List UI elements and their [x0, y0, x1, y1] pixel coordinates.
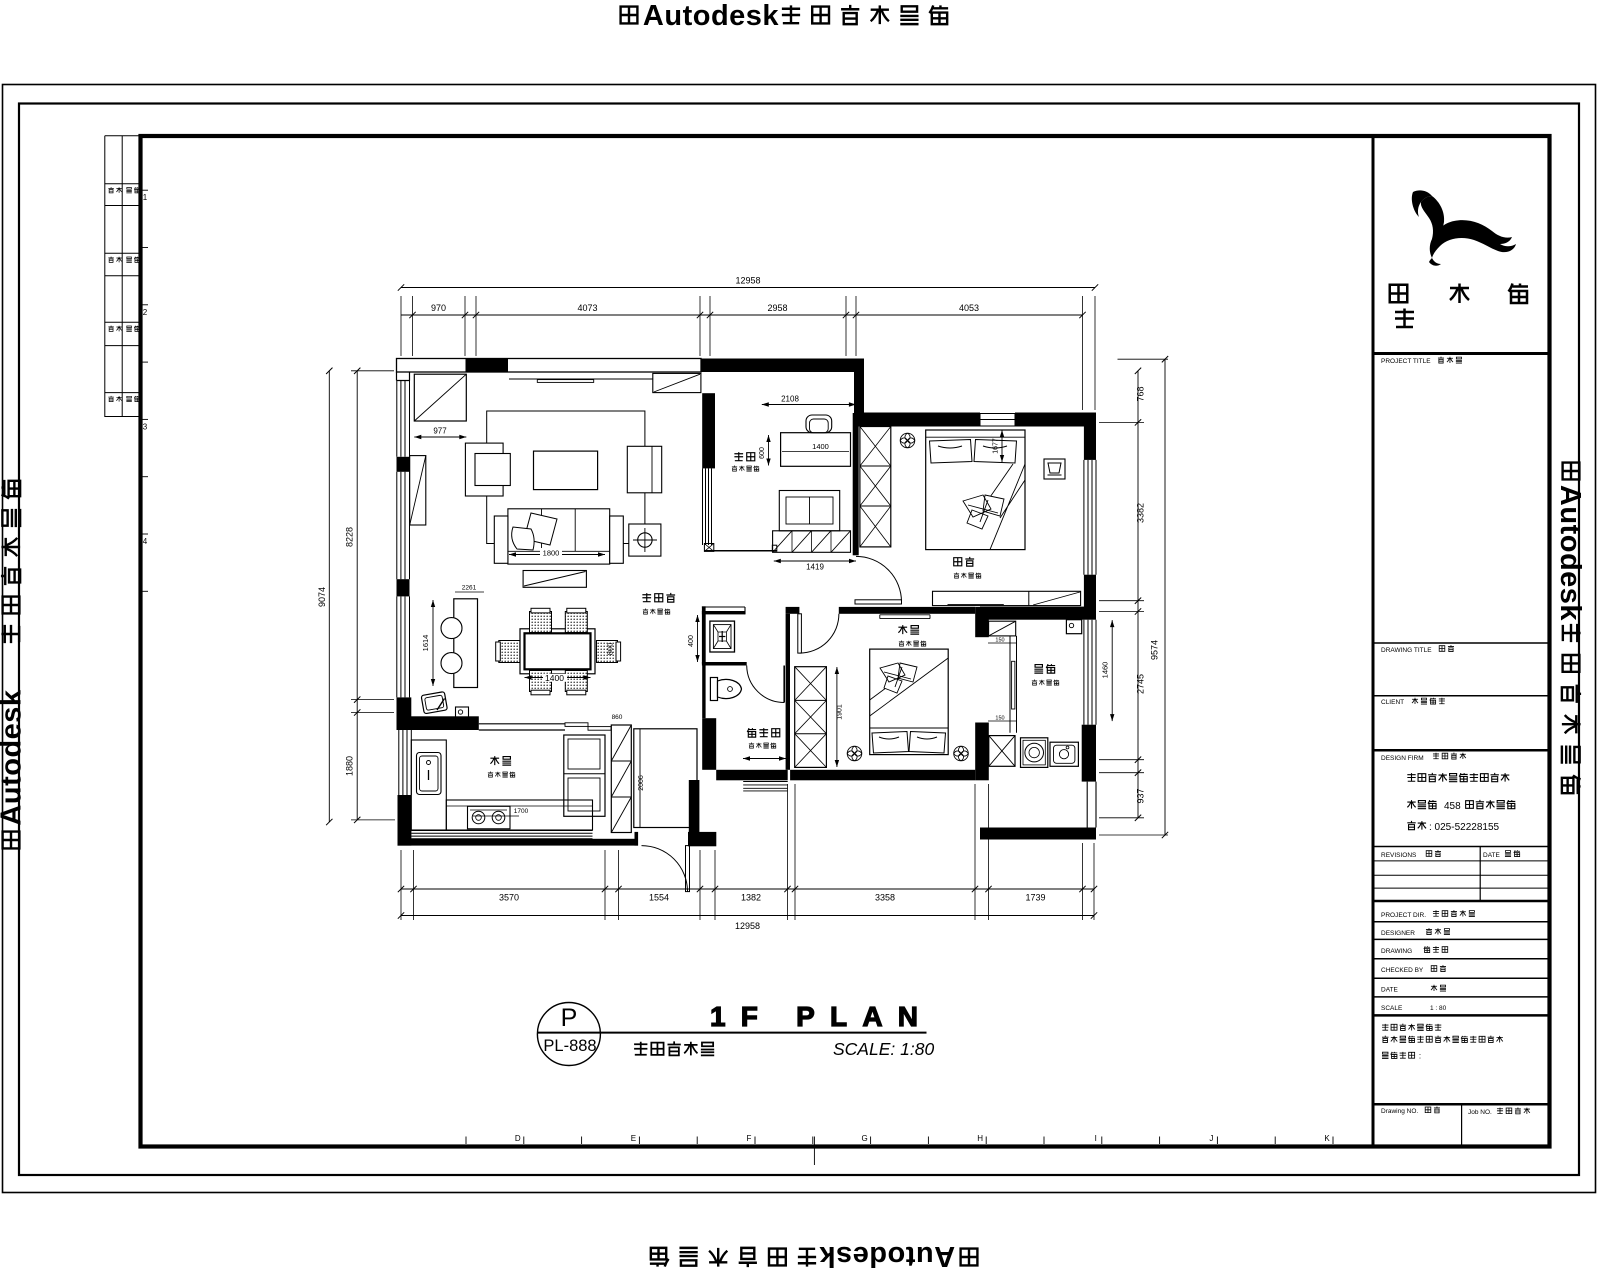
svg-text:DESIGN FIRM: DESIGN FIRM [1381, 755, 1424, 762]
svg-text:3382: 3382 [1136, 503, 1146, 523]
svg-text:I: I [1095, 1134, 1097, 1143]
svg-text:1677: 1677 [993, 438, 1000, 454]
svg-text:Job NO.: Job NO. [1468, 1109, 1492, 1116]
svg-text:DATE: DATE [1381, 987, 1399, 994]
svg-text:2958: 2958 [767, 303, 787, 313]
svg-text:150: 150 [995, 716, 1004, 722]
svg-text:2745: 2745 [1136, 674, 1146, 694]
svg-text:860: 860 [612, 714, 623, 721]
svg-text:CHECKED BY: CHECKED BY [1381, 967, 1424, 974]
svg-text:DATE: DATE [1483, 852, 1501, 859]
svg-text:3358: 3358 [875, 893, 895, 903]
svg-text:12958: 12958 [735, 276, 760, 286]
svg-text:1800: 1800 [543, 549, 560, 558]
svg-text:1700: 1700 [514, 808, 529, 815]
svg-text:2108: 2108 [781, 395, 799, 404]
svg-text:1739: 1739 [1025, 893, 1045, 903]
svg-text:1419: 1419 [806, 563, 824, 572]
svg-text:DRAWING: DRAWING [1381, 948, 1412, 955]
svg-text:DRAWING TITLE: DRAWING TITLE [1381, 647, 1432, 654]
svg-text:CLIENT: CLIENT [1381, 699, 1404, 706]
svg-text:Autodesk: Autodesk [819, 1240, 956, 1272]
svg-text:1 : 80: 1 : 80 [1430, 1005, 1447, 1012]
svg-text:977: 977 [433, 427, 447, 436]
svg-text:458: 458 [1444, 801, 1461, 812]
svg-text:Autodesk: Autodesk [0, 689, 28, 826]
svg-text:400: 400 [688, 635, 695, 647]
svg-text:Drawing NO.: Drawing NO. [1381, 1108, 1418, 1115]
svg-text:PL-888: PL-888 [543, 1037, 596, 1055]
svg-text::: : [1419, 1052, 1421, 1061]
svg-text:9074: 9074 [317, 587, 327, 607]
svg-text:D: D [515, 1134, 521, 1143]
svg-text:F: F [747, 1134, 752, 1143]
svg-text:2: 2 [143, 308, 148, 317]
svg-text:1400: 1400 [812, 442, 829, 451]
svg-text:800: 800 [606, 643, 615, 656]
svg-text:150: 150 [995, 638, 1004, 644]
svg-text:PROJECT TITLE: PROJECT TITLE [1381, 358, 1431, 365]
svg-text:H: H [977, 1134, 983, 1143]
svg-text:4: 4 [143, 537, 148, 546]
svg-text:G: G [861, 1134, 867, 1143]
svg-text:1460: 1460 [1101, 662, 1110, 679]
svg-text:SCALE: 1:80: SCALE: 1:80 [833, 1039, 934, 1059]
svg-text:: 025-52228155: : 025-52228155 [1429, 822, 1500, 833]
svg-text:2006: 2006 [638, 775, 645, 791]
svg-text:1614: 1614 [421, 635, 430, 652]
svg-text:1880: 1880 [345, 756, 355, 776]
svg-text:1: 1 [143, 193, 148, 202]
svg-text:E: E [631, 1134, 636, 1143]
svg-text:PROJECT DIR.: PROJECT DIR. [1381, 912, 1426, 919]
svg-text:1382: 1382 [741, 893, 761, 903]
svg-text:1400: 1400 [545, 673, 564, 683]
svg-text:9574: 9574 [1150, 640, 1160, 660]
svg-text:K: K [1324, 1134, 1330, 1143]
svg-text:P: P [561, 1004, 578, 1032]
svg-text:4053: 4053 [959, 303, 979, 313]
svg-text:1901: 1901 [837, 704, 844, 720]
svg-text:970: 970 [431, 303, 446, 313]
svg-text:3: 3 [143, 422, 148, 431]
svg-text:3570: 3570 [499, 893, 519, 903]
svg-text:937: 937 [1136, 788, 1146, 803]
svg-text:DESIGNER: DESIGNER [1381, 930, 1415, 937]
svg-text:J: J [1209, 1134, 1213, 1143]
svg-text:SCALE: SCALE [1381, 1005, 1403, 1012]
svg-text:Autodesk: Autodesk [1554, 485, 1586, 622]
svg-text:4073: 4073 [577, 303, 597, 313]
svg-text:2261: 2261 [462, 585, 477, 592]
svg-text:REVISIONS: REVISIONS [1381, 852, 1417, 859]
svg-text:768: 768 [1136, 386, 1146, 401]
svg-text:Autodesk: Autodesk [643, 0, 780, 32]
svg-text:8228: 8228 [345, 527, 355, 547]
svg-text:12958: 12958 [735, 921, 760, 931]
svg-text:1554: 1554 [649, 893, 669, 903]
svg-text:600: 600 [759, 447, 766, 459]
